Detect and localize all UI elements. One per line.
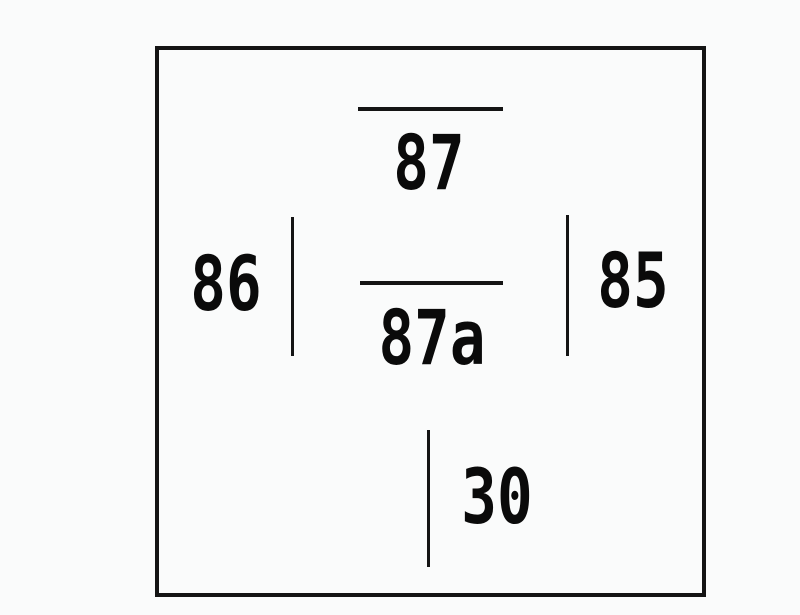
pin-87-lead-line xyxy=(358,107,503,111)
pin-85-label: 85 xyxy=(597,243,668,319)
pin-87a-label: 87a xyxy=(378,300,485,376)
pin-30-label: 30 xyxy=(461,459,532,535)
pin-87-label: 87 xyxy=(393,125,464,201)
pin-86-lead-line xyxy=(291,217,294,356)
pin-87a-lead-line xyxy=(360,281,503,285)
relay-pinout-diagram: 87 87a 86 85 30 xyxy=(0,0,800,615)
pin-86-label: 86 xyxy=(190,246,261,322)
pin-30-lead-line xyxy=(427,430,430,567)
pin-85-lead-line xyxy=(566,215,569,356)
